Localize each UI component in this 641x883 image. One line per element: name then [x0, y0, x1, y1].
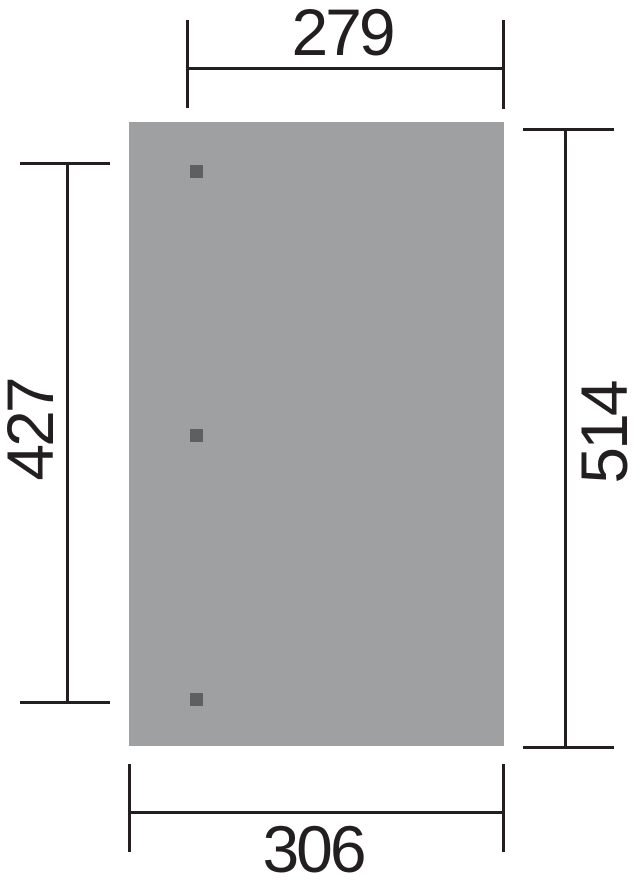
roof-panel — [129, 122, 504, 746]
dimension-tick — [20, 162, 110, 165]
dimension-label-bottom: 306 — [262, 816, 363, 882]
dimension-label-right: 514 — [571, 382, 637, 483]
dimension-tick — [186, 20, 189, 108]
dimension-label-top: 279 — [291, 0, 392, 65]
post-marker — [190, 693, 203, 706]
technical-drawing: 279 306 427 514 — [0, 0, 641, 883]
dimension-tick — [128, 764, 131, 852]
post-marker — [190, 165, 203, 178]
dimension-tick — [523, 746, 614, 749]
post-marker — [190, 429, 203, 442]
dimension-tick — [523, 128, 614, 131]
dimension-tick — [502, 20, 505, 109]
dimension-tick — [20, 701, 110, 704]
dimension-label-left: 427 — [0, 379, 63, 480]
dimension-tick — [502, 764, 505, 852]
